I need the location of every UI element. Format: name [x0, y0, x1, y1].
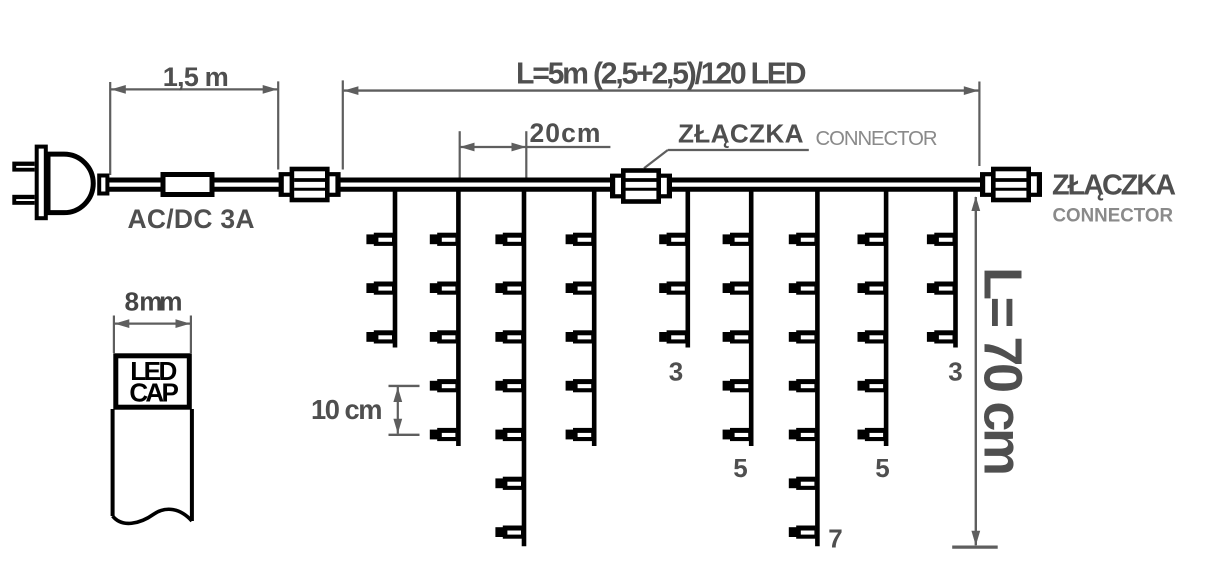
svg-text:1,5 m: 1,5 m	[163, 61, 229, 92]
svg-text:3: 3	[948, 357, 962, 387]
svg-text:L= 70 cm: L= 70 cm	[973, 267, 1033, 476]
svg-text:8 mm: 8 mm	[125, 286, 183, 316]
svg-text:10 cm: 10 cm	[311, 394, 383, 425]
svg-text:ZŁĄCZKA: ZŁĄCZKA	[1052, 169, 1176, 201]
svg-text:ZŁĄCZKA: ZŁĄCZKA	[678, 118, 804, 148]
svg-text:L=5m (2,5+2,5)/120 LED: L=5m (2,5+2,5)/120 LED	[516, 57, 807, 90]
svg-text:3: 3	[669, 357, 683, 387]
svg-text:AC/DC 3A: AC/DC 3A	[128, 204, 255, 234]
svg-text:CAP: CAP	[129, 378, 179, 408]
svg-text:5: 5	[875, 453, 889, 483]
svg-text:5: 5	[733, 453, 747, 483]
svg-text:CONNECTOR: CONNECTOR	[1053, 205, 1174, 227]
svg-text:7: 7	[828, 524, 842, 554]
svg-text:20cm: 20cm	[530, 118, 601, 148]
svg-text:CONNECTOR: CONNECTOR	[816, 128, 938, 150]
